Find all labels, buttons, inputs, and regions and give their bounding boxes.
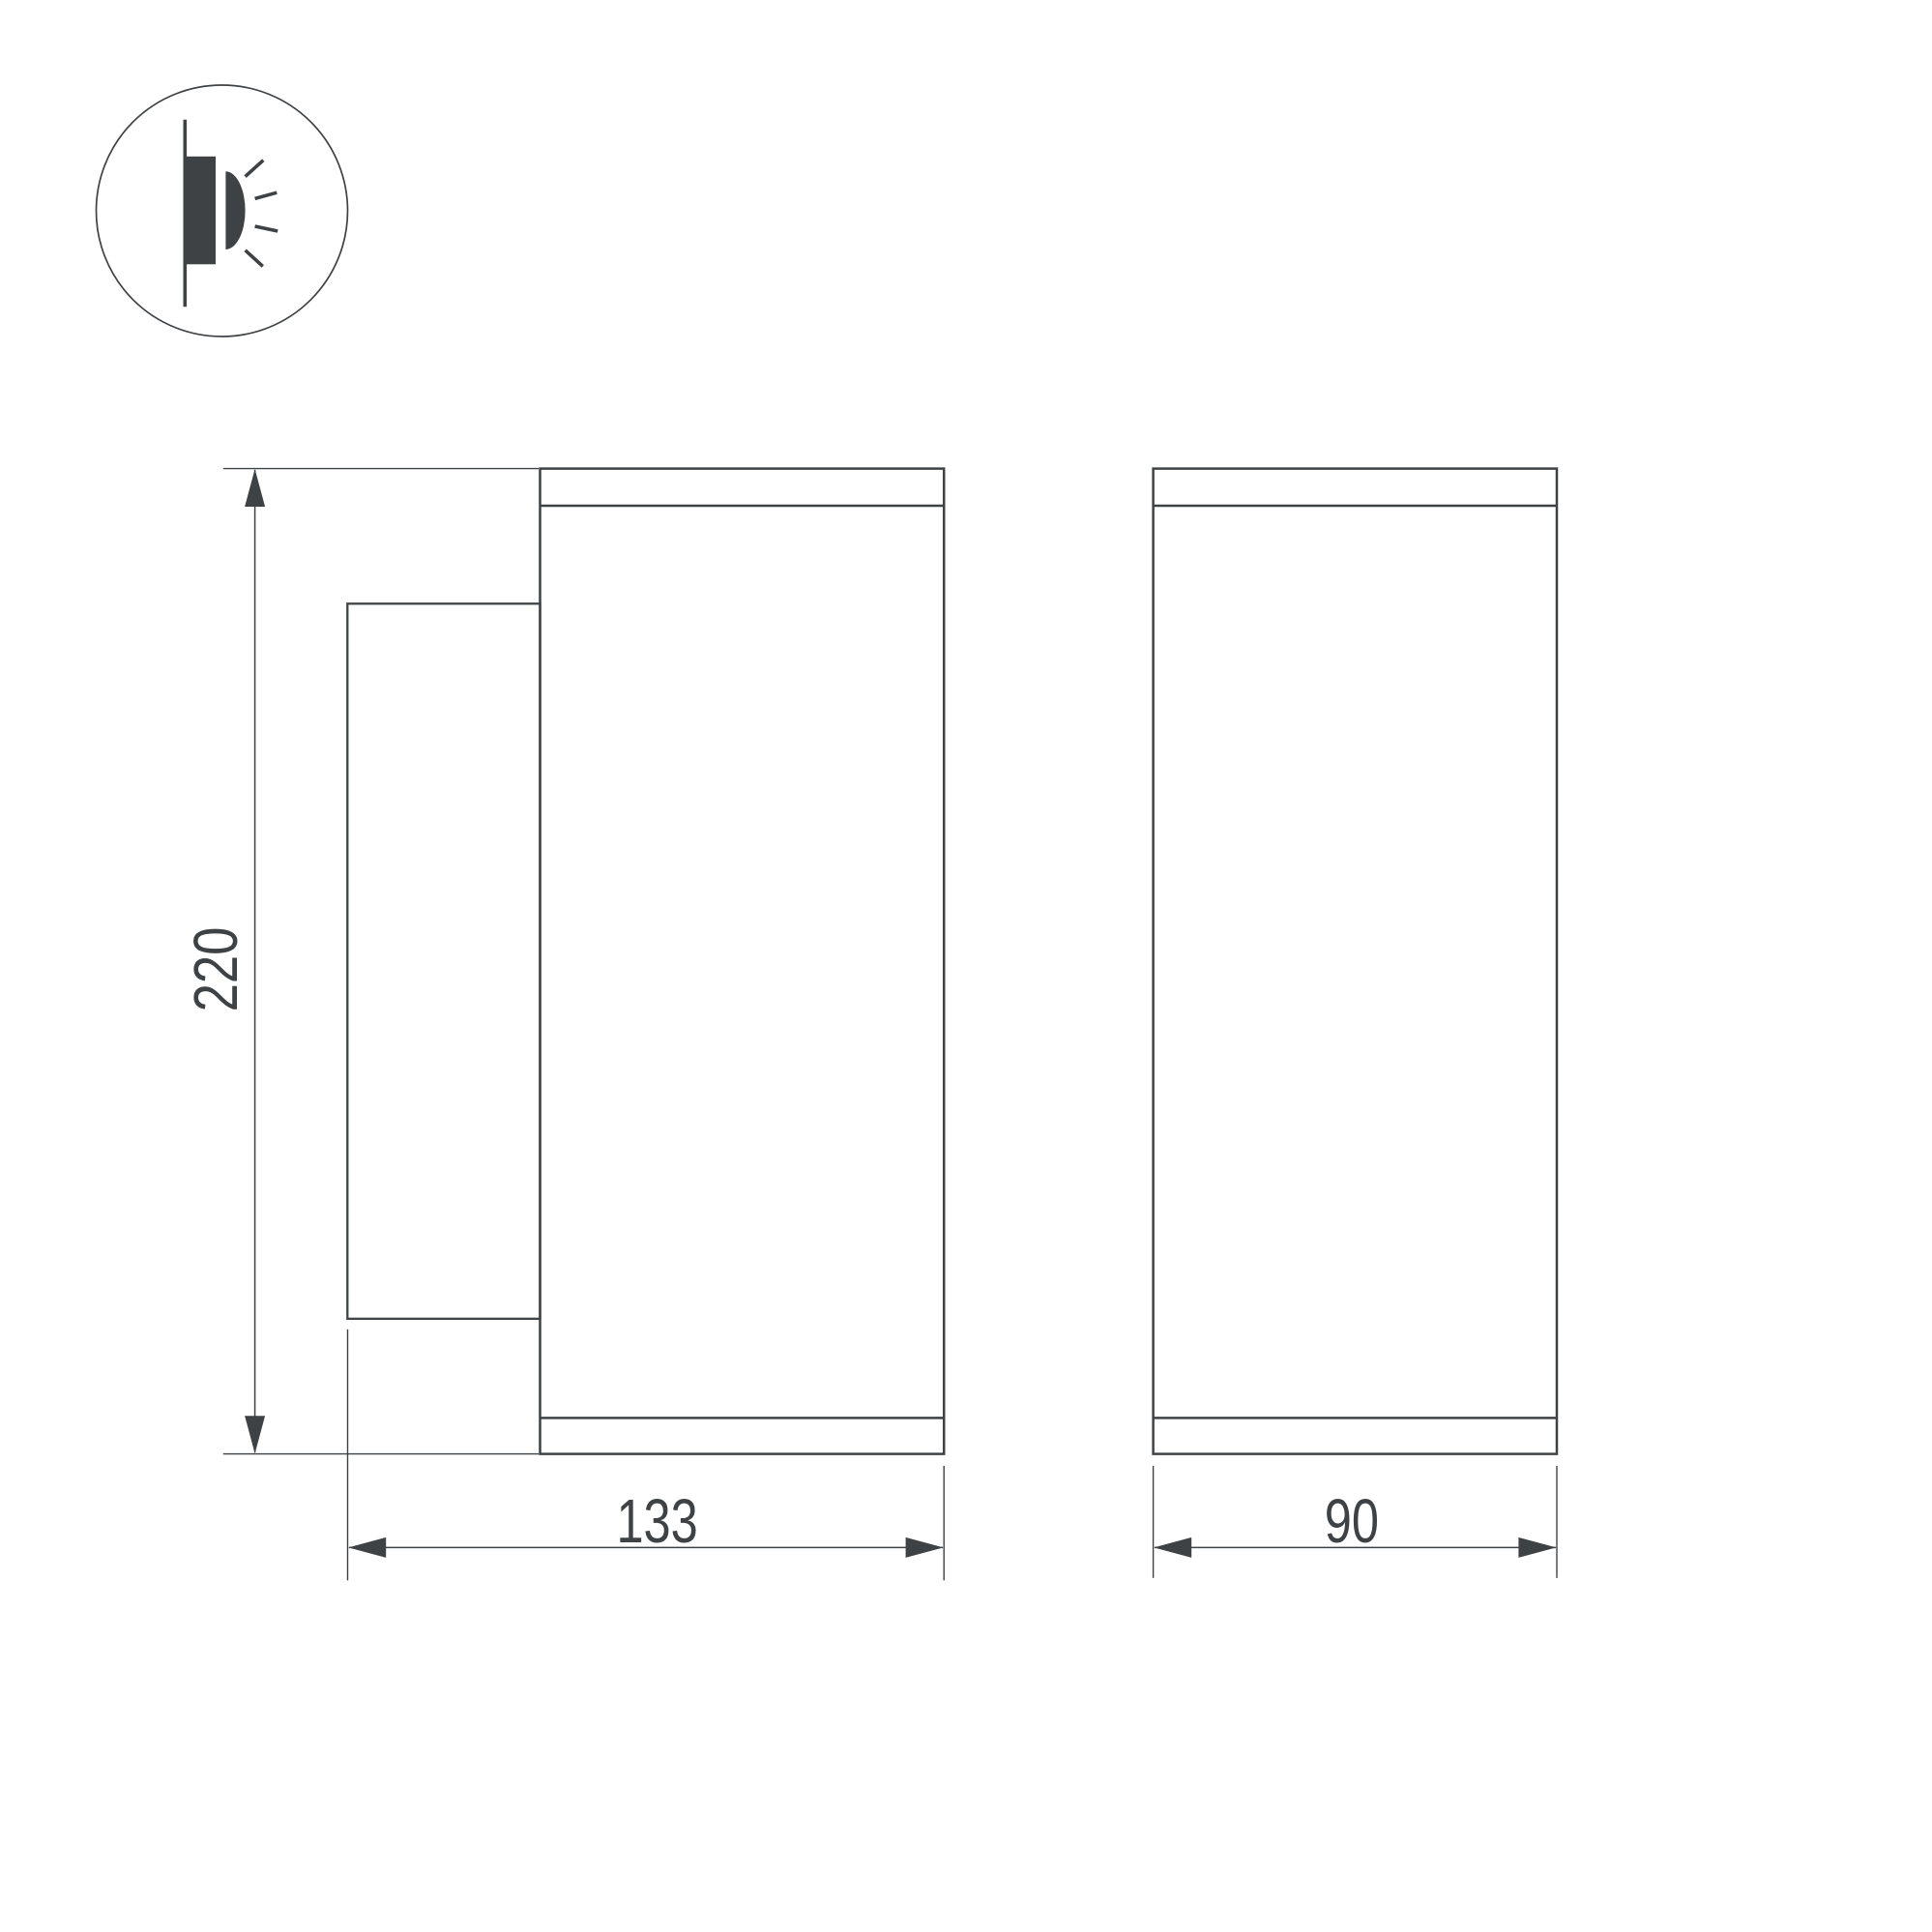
svg-text:90: 90	[1325, 1487, 1379, 1556]
svg-text:133: 133	[616, 1487, 697, 1556]
svg-text:220: 220	[182, 927, 250, 1012]
